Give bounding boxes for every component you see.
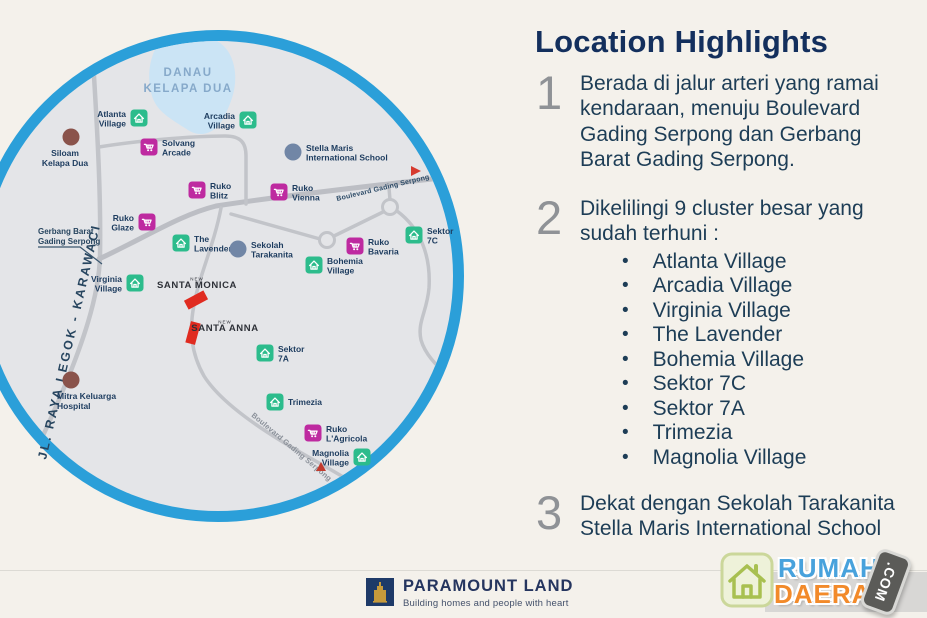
- lake-label: KELAPA DUA: [143, 83, 232, 95]
- list-item: •Trimezia: [622, 421, 927, 446]
- poi-label: Hospital: [57, 401, 91, 411]
- list-item: •Bohemia Village: [622, 348, 927, 373]
- poi-label: Kelapa Dua: [42, 158, 89, 168]
- poi-label: Magnolia: [312, 448, 349, 458]
- road-junction-node: [320, 233, 335, 248]
- list-item: •Sektor 7C: [622, 372, 927, 397]
- school-icon: [285, 144, 302, 161]
- poi-label: 7C: [427, 236, 438, 246]
- poi-label: Arcadia: [204, 111, 235, 121]
- poi-label: L'Agricola: [326, 434, 367, 444]
- list-item: •The Lavender: [622, 323, 927, 348]
- list-item: •Magnolia Village: [622, 446, 927, 471]
- highlight-text: kendaraan, menuju Boulevard: [580, 96, 927, 121]
- poi-label: Siloam: [51, 148, 79, 158]
- list-item: •Sektor 7A: [622, 397, 927, 422]
- poi-atlanta-village: AtlantaVillage: [97, 109, 147, 129]
- gerbang-label: Gading Serpong: [38, 237, 100, 246]
- poi-label: Ruko: [292, 183, 313, 193]
- paramount-land-logo: PARAMOUNT LAND Building homes and people…: [366, 578, 573, 609]
- page-title: Location Highlights: [535, 24, 828, 60]
- poi-label: Vienna: [292, 193, 320, 203]
- list-item: •Atlanta Village: [622, 250, 927, 275]
- highlight-number: 3: [536, 491, 580, 542]
- poi-label: Ruko: [113, 213, 134, 223]
- list-item: •Virginia Village: [622, 299, 927, 324]
- highlight-text: Dekat dengan Sekolah Tarakanita: [580, 491, 927, 516]
- poi-arcadia-village: ArcadiaVillage: [204, 111, 257, 131]
- paramount-building-icon: [366, 578, 394, 606]
- highlight-number: 2: [536, 196, 580, 470]
- site-map: DANAU KELAPA DUA JL. RAYA LEGOK - KARAWA…: [0, 0, 480, 560]
- map-circle: [0, 36, 459, 517]
- poi-label: Ruko: [368, 237, 389, 247]
- shop-cart-icon: [271, 184, 288, 201]
- shop-cart-icon: [189, 182, 206, 199]
- shop-cart-icon: [141, 139, 158, 156]
- brand-name: PARAMOUNT LAND: [403, 578, 573, 595]
- poi-label: The: [194, 234, 209, 244]
- poi-label: Ruko: [210, 181, 231, 191]
- shop-cart-icon: [305, 425, 322, 442]
- poi-label: Ruko: [326, 424, 347, 434]
- hospital-icon: [63, 129, 80, 146]
- highlight-item-3: 3 Dekat dengan Sekolah Tarakanita Stella…: [536, 491, 927, 542]
- house-icon: [257, 345, 274, 362]
- house-icon: [306, 257, 323, 274]
- lake-label: DANAU: [163, 67, 212, 79]
- poi-label: 7A: [278, 354, 289, 364]
- poi-label: Sektor: [427, 226, 454, 236]
- highlight-text: Stella Maris International School: [580, 516, 927, 541]
- poi-ruko-blitz: RukoBlitz: [189, 181, 232, 201]
- poi-label: Lavender: [194, 244, 232, 254]
- house-icon: [173, 235, 190, 252]
- list-item: •Arcadia Village: [622, 274, 927, 299]
- poi-label: Glaze: [111, 223, 134, 233]
- poi-label: Village: [99, 119, 127, 129]
- school-icon: [230, 241, 247, 258]
- brand-tagline: Building homes and people with heart: [403, 598, 573, 609]
- poi-ruko-vienna: RukoVienna: [271, 183, 320, 203]
- highlight-text: Barat Gading Serpong.: [580, 147, 927, 172]
- poi-label: Trimezia: [288, 397, 322, 407]
- gerbang-label: Gerbang Barat: [38, 227, 94, 236]
- highlight-number: 1: [536, 71, 580, 173]
- highlight-text: Dikelilingi 9 cluster besar yang: [580, 196, 927, 221]
- house-icon: [131, 110, 148, 127]
- poi-label: Village: [327, 266, 355, 276]
- hospital-icon: [63, 372, 80, 389]
- cluster-list: •Atlanta Village •Arcadia Village •Virgi…: [580, 250, 927, 471]
- poi-ruko-glaze: RukoGlaze: [111, 213, 155, 233]
- highlight-text: sudah terhuni :: [580, 221, 927, 246]
- poi-label: Blitz: [210, 191, 228, 201]
- highlight-text: Berada di jalur arteri yang ramai: [580, 71, 927, 96]
- location-highlights-flyer: DANAU KELAPA DUA JL. RAYA LEGOK - KARAWA…: [0, 0, 927, 618]
- highlight-text: Gading Serpong dan Gerbang: [580, 122, 927, 147]
- highlight-item-2: 2 Dikelilingi 9 cluster besar yang sudah…: [536, 196, 927, 470]
- project-name-label: SANTA MONICA: [157, 280, 237, 291]
- poi-virginia-village: VirginiaVillage: [91, 274, 144, 294]
- house-icon: [267, 394, 284, 411]
- project-name-label: SANTA ANNA: [191, 323, 258, 334]
- poi-label: Atlanta: [97, 109, 126, 119]
- road-junction-node: [383, 200, 398, 215]
- poi-label: Stella Maris: [306, 143, 354, 153]
- house-icon: [406, 227, 423, 244]
- shop-cart-icon: [139, 214, 156, 231]
- poi-label: Village: [208, 121, 236, 131]
- watermark-house-icon: [720, 552, 774, 608]
- poi-label: Mitra Keluarga: [57, 391, 116, 401]
- house-icon: [240, 112, 257, 129]
- poi-label: International School: [306, 153, 388, 163]
- poi-label: Sektor: [278, 344, 305, 354]
- poi-magnolia-village: MagnoliaVillage: [312, 448, 370, 468]
- poi-label: Bavaria: [368, 247, 399, 257]
- poi-label: Arcade: [162, 148, 191, 158]
- house-icon: [127, 275, 144, 292]
- shop-cart-icon: [347, 238, 364, 255]
- highlight-item-1: 1 Berada di jalur arteri yang ramai kend…: [536, 71, 927, 173]
- poi-label: Virginia: [91, 274, 122, 284]
- poi-label: Tarakanita: [251, 250, 293, 260]
- poi-label: Sekolah: [251, 240, 284, 250]
- poi-label: Village: [95, 284, 123, 294]
- poi-label: Bohemia: [327, 256, 363, 266]
- poi-label: Village: [322, 458, 350, 468]
- poi-solvang-arcade: SolvangArcade: [141, 138, 196, 158]
- poi-label: Solvang: [162, 138, 195, 148]
- house-icon: [354, 449, 371, 466]
